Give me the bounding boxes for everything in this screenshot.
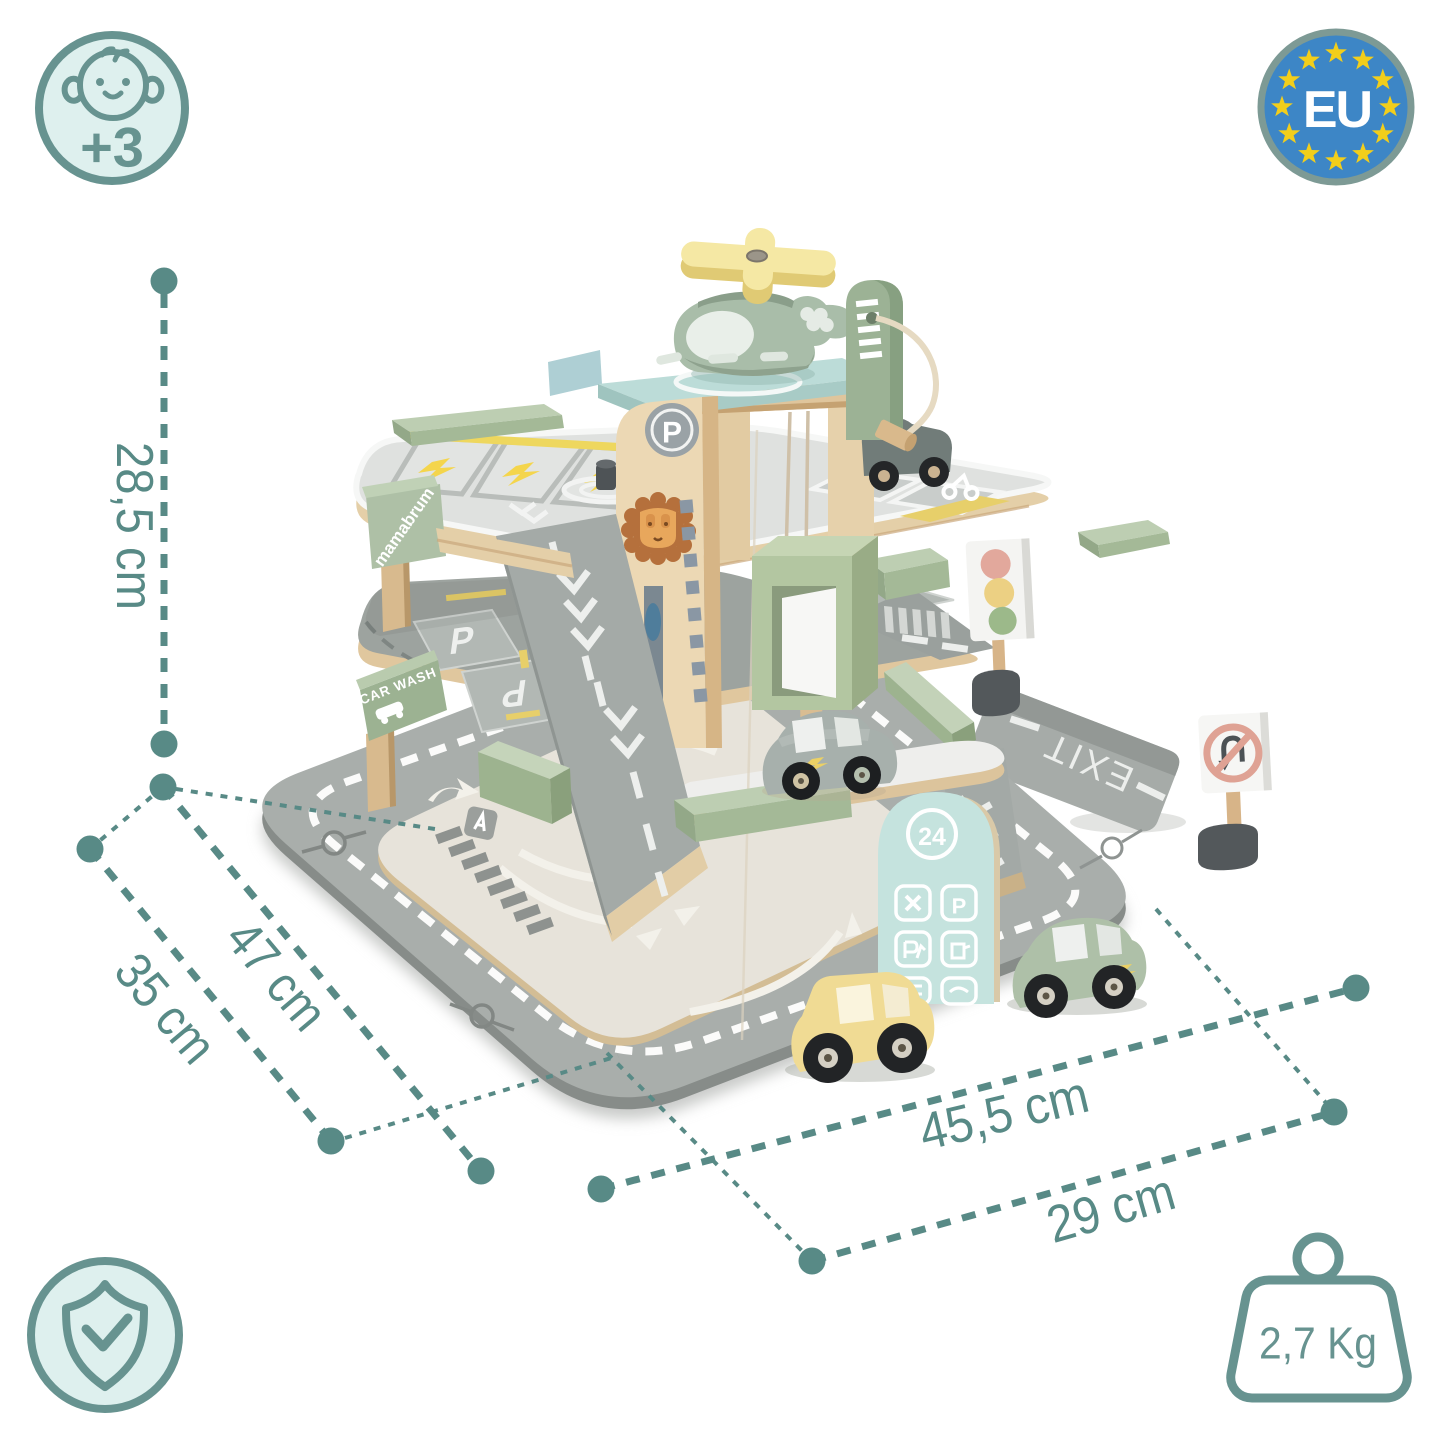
svg-text:P: P	[952, 894, 967, 919]
svg-text:P: P	[662, 417, 682, 450]
svg-text:28,5 cm: 28,5 cm	[105, 442, 163, 610]
svg-text:EU: EU	[1303, 81, 1371, 139]
svg-text:2,7 Kg: 2,7 Kg	[1259, 1318, 1377, 1369]
svg-text:+3: +3	[80, 116, 144, 179]
svg-text:24: 24	[918, 823, 946, 851]
